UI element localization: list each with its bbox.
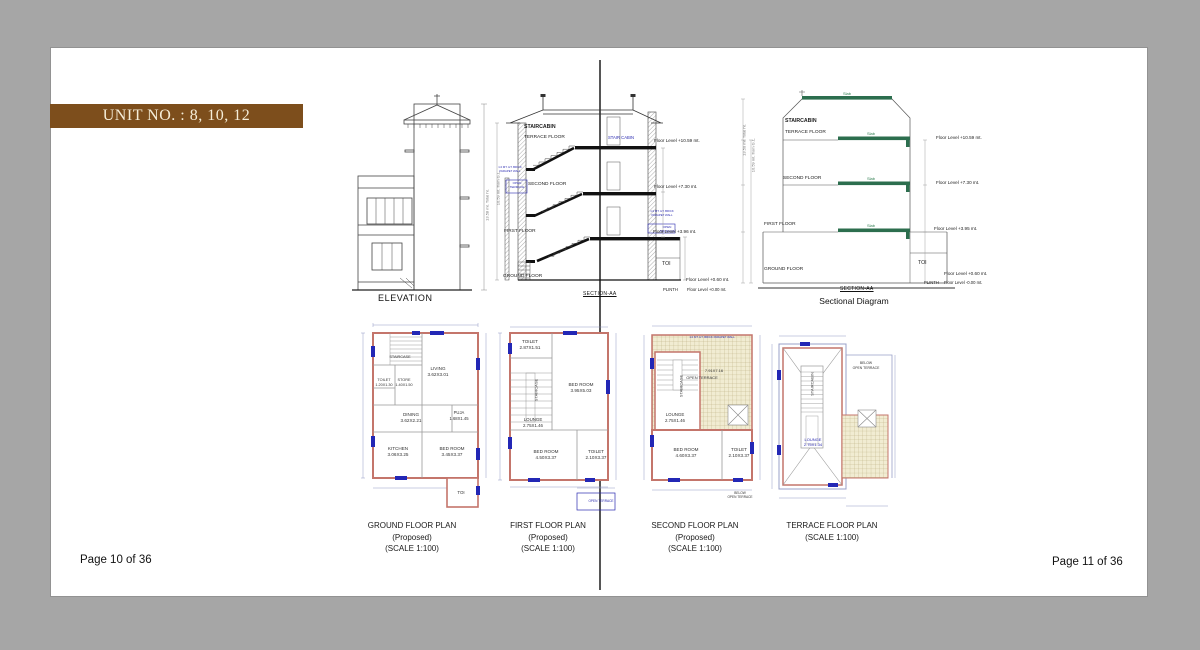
section-staircabin-label: STAIRCABIN bbox=[524, 125, 556, 131]
room-toilet-f1-dims: 2.87X1.51 bbox=[520, 345, 541, 351]
room-kitchen: KITCHEN 3.06X3.25 bbox=[388, 446, 409, 458]
ground-plan-caption: GROUND FLOOR PLAN (Proposed) (SCALE 1:10… bbox=[368, 520, 456, 555]
section-level-terrace: Floor Level +10.59 mt. bbox=[654, 138, 700, 143]
section-level-plinth-top: Floor Level +0.60 mt. bbox=[686, 277, 729, 282]
room-lounge-terrace: LOUNGE 2.75X1.34 bbox=[804, 437, 822, 448]
section-toi-label: TOI bbox=[662, 262, 671, 268]
second-plan-caption: SECOND FLOOR PLAN (Proposed) (SCALE 1:10… bbox=[651, 520, 738, 555]
section-ground-floor-label: GROUND FLOOR bbox=[503, 274, 542, 280]
room-lounge-terrace-dims: 2.75X1.34 bbox=[804, 442, 822, 447]
room-kitchen-dims: 3.06X3.25 bbox=[388, 452, 409, 458]
slab-label-top: Slab bbox=[843, 91, 851, 96]
second-floor-plan bbox=[640, 320, 770, 515]
second-below-open-terrace: BELOW OPEN TERRACE bbox=[727, 491, 752, 500]
room-bedroom-f1-right: BED ROOM 3.95X5.03 bbox=[568, 382, 593, 394]
page-number-right: Page 11 of 36 bbox=[1052, 556, 1123, 568]
second-open-terrace-dims: 7.91X7.16 bbox=[705, 368, 723, 373]
room-toilet-f1-bottom: TOILET 2.10X3.37 bbox=[586, 449, 607, 461]
page-number-left: Page 10 of 36 bbox=[80, 554, 152, 566]
room-lounge-f1: LOUNGE 2.75X1.46 bbox=[523, 417, 543, 429]
second-staircase-label: STAIRCASE bbox=[679, 375, 684, 397]
section-level-first: Floor Level +3.96 mt. bbox=[653, 229, 696, 234]
room-bedroom-g-dims: 3.45X3.37 bbox=[439, 452, 464, 458]
room-toi-g: TOI bbox=[457, 490, 464, 496]
sectional-level-ground: Floor Level -0.00 mt. bbox=[944, 280, 982, 285]
ground-staircase-label: STAIRCASE bbox=[389, 355, 410, 360]
section-drawing bbox=[495, 85, 710, 305]
room-bedroom-f1-bottom: BED ROOM 4.50X3.37 bbox=[533, 449, 558, 461]
room-bedroom-f2-dims: 4.60X3.37 bbox=[673, 453, 698, 459]
terrace-floor-plan bbox=[770, 330, 905, 525]
sectional-first-floor-label: FIRST FLOOR bbox=[764, 222, 796, 228]
room-store-dims: 1.40X1.50 bbox=[395, 383, 412, 388]
room-toilet-g: TOILET 1.20X1.30 bbox=[375, 378, 392, 388]
first-staircase-label: STAIRCASE bbox=[534, 379, 539, 401]
room-puja-dims: 1.68X1.45 bbox=[449, 416, 468, 422]
sectional-staircabin-label: STAIRCABIN bbox=[785, 119, 817, 125]
section-open-terrace-left: OPEN TERRACE bbox=[510, 181, 525, 189]
room-dining: DINING 3.62X2.21 bbox=[401, 412, 422, 424]
room-toilet-g-dims: 1.20X1.30 bbox=[375, 383, 392, 388]
section-parapet-note-left: 1.0 MT. HT. BRICK PARAPET WALL bbox=[498, 166, 521, 174]
slab-label-terrace: Slab bbox=[867, 131, 875, 136]
room-bedroom-f1-right-dims: 3.95X5.03 bbox=[568, 388, 593, 394]
sectional-terrace-floor-label: TERRACE FLOOR bbox=[785, 130, 826, 136]
room-lounge-f2-dims: 2.75X1.46 bbox=[665, 418, 685, 424]
room-living-dims: 3.62X3.01 bbox=[428, 372, 449, 378]
room-toilet-f2: TOILET 2.10X3.37 bbox=[729, 447, 750, 459]
sectional-level-terrace: Floor Level +10.59 mt. bbox=[936, 135, 982, 140]
section-first-floor-label: FIRST FLOOR bbox=[504, 229, 536, 235]
section-dim-note: 10.59 mt. from G.L. bbox=[496, 171, 501, 205]
sectional-dim-gl: 10.59 mt. from G.L. bbox=[751, 138, 756, 172]
first-plan-caption: FIRST FLOOR PLAN (Proposed) (SCALE 1:100… bbox=[510, 520, 586, 555]
section-level-second: Floor Level +7.30 mt. bbox=[654, 184, 697, 189]
room-lounge-f2: LOUNGE 2.75X1.46 bbox=[665, 412, 685, 424]
sectional-diagram bbox=[740, 85, 990, 310]
sectional-dim-total: 13.50 mt. Total ht. bbox=[742, 124, 747, 156]
second-parapet-note: 1.0 MT. HT. BRICK PARAPET WALL bbox=[689, 336, 734, 340]
sectional-second-floor-label: SECOND FLOOR bbox=[783, 176, 821, 182]
first-open-terrace-label: OPEN TERRACE bbox=[588, 499, 613, 503]
ground-floor-plan bbox=[355, 320, 490, 515]
room-store: STORE 1.40X1.50 bbox=[395, 378, 412, 388]
first-floor-plan bbox=[495, 325, 625, 515]
second-open-terrace-name: OPEN TERRACE bbox=[686, 375, 718, 380]
room-bedroom-f1-bottom-dims: 4.50X3.37 bbox=[533, 455, 558, 461]
section-second-floor-label: SECOND FLOOR bbox=[528, 182, 566, 188]
room-bedroom-f2: BED ROOM 4.60X3.37 bbox=[673, 447, 698, 459]
section-caption: SECTION-AA bbox=[583, 291, 617, 297]
section-plinth-label: PLINTH bbox=[663, 287, 678, 292]
section-terrace-floor-label: TERRACE FLOOR bbox=[524, 135, 565, 141]
sectional-ground-floor-label: GROUND FLOOR bbox=[764, 267, 803, 273]
document-canvas: UNIT NO. : 8, 10, 12 ELEVATION 13.58 mt.… bbox=[0, 0, 1200, 650]
sectional-toi-label: TOI bbox=[918, 261, 927, 267]
room-toilet-f1-bottom-dims: 2.10X3.37 bbox=[586, 455, 607, 461]
slab-label-second: Slab bbox=[867, 176, 875, 181]
section-parapet-note-right: 1.0 MT. HT. BRICK PARAPET WALL bbox=[650, 210, 673, 218]
slab-label-first: Slab bbox=[867, 223, 875, 228]
terrace-staircabin-label: STAIRCABIN bbox=[810, 372, 815, 396]
room-bedroom-g: BED ROOM 3.45X3.37 bbox=[439, 446, 464, 458]
elevation-drawing bbox=[350, 88, 495, 303]
terrace-below-open-terrace: BELOW OPEN TERRACE bbox=[853, 361, 880, 370]
section-level-ground: Floor Level +0.00 mt. bbox=[687, 287, 726, 292]
sectional-caption: Sectional Diagram bbox=[819, 296, 888, 307]
unit-banner: UNIT NO. : 8, 10, 12 bbox=[50, 104, 303, 128]
sectional-level-first: Floor Level +3.95 mt. bbox=[934, 226, 977, 231]
elevation-caption: ELEVATION bbox=[378, 293, 433, 303]
room-toilet-f1: TOILET 2.87X1.51 bbox=[520, 339, 541, 351]
sectional-level-second: Floor Level +7.30 mt. bbox=[936, 180, 979, 185]
room-living: LIVING 3.62X3.01 bbox=[428, 366, 449, 378]
elevation-dim-note: 13.58 mt. Total ht. bbox=[485, 189, 490, 221]
room-puja: PUJA 1.68X1.45 bbox=[449, 410, 468, 421]
room-toilet-f2-dims: 2.10X3.37 bbox=[729, 453, 750, 459]
room-lounge-f1-dims: 2.75X1.46 bbox=[523, 423, 543, 429]
terrace-plan-caption: TERRACE FLOOR PLAN (SCALE 1:100) bbox=[786, 520, 877, 543]
section-stair-cabin-label: STAIR CABIN bbox=[608, 136, 634, 141]
sectional-plinth-label: PLINTH bbox=[924, 280, 939, 285]
sectional-section-label: SECTION-AA bbox=[840, 286, 874, 292]
sectional-level-plinth-top: Floor Level +0.60 mt. bbox=[944, 271, 987, 276]
room-dining-dims: 3.62X2.21 bbox=[401, 418, 422, 424]
